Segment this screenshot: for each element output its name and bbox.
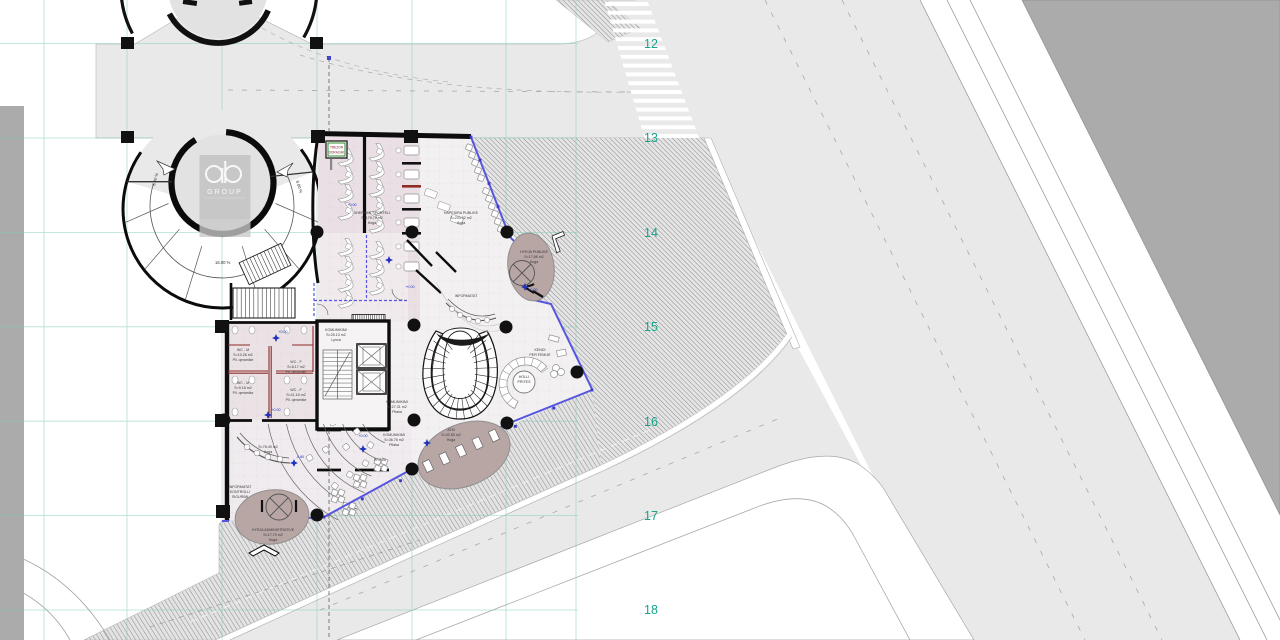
svg-text:PRITJA: PRITJA xyxy=(374,458,387,462)
svg-text:Pll. qeramike: Pll. qeramike xyxy=(233,391,254,395)
svg-text:S=32.83 m2: S=32.83 m2 xyxy=(441,433,460,437)
svg-text:+0.00: +0.00 xyxy=(358,434,367,438)
svg-text:S=17.70 m2: S=17.70 m2 xyxy=(263,533,282,537)
svg-text:Hoga: Hoga xyxy=(264,450,273,454)
svg-text:Pll. qeramike: Pll. qeramike xyxy=(286,398,307,402)
svg-text:SHERBIMI SPORTELI: SHERBIMI SPORTELI xyxy=(354,211,390,215)
svg-text:16: 16 xyxy=(644,415,658,429)
svg-text:Pll. qeramike: Pll. qeramike xyxy=(233,358,254,362)
svg-text:SIGURIMI: SIGURIMI xyxy=(232,495,248,499)
svg-text:Pllaka: Pllaka xyxy=(392,410,402,414)
svg-text:13: 13 xyxy=(644,131,658,145)
svg-text:18: 18 xyxy=(644,603,658,617)
svg-text:WC - F: WC - F xyxy=(290,388,302,392)
svg-text:GROUP: GROUP xyxy=(207,189,243,196)
svg-text:PER FEMIJE: PER FEMIJE xyxy=(529,353,551,357)
svg-text:Hoga: Hoga xyxy=(447,438,456,442)
svg-text:Hoga: Hoga xyxy=(457,221,466,225)
svg-text:S=11.16 m2: S=11.16 m2 xyxy=(286,393,305,397)
svg-text:+0.00: +0.00 xyxy=(528,288,537,292)
svg-text:KENDI: KENDI xyxy=(535,348,546,352)
svg-text:WC - F: WC - F xyxy=(290,360,302,364)
svg-text:S=36.76 m2: S=36.76 m2 xyxy=(384,438,403,442)
svg-text:S=27.31 m2: S=27.31 m2 xyxy=(387,405,406,409)
svg-text:17: 17 xyxy=(644,509,658,523)
svg-text:KONTROLLI: KONTROLLI xyxy=(230,490,250,494)
svg-text:-0.80: -0.80 xyxy=(296,455,304,459)
svg-text:Pllaka: Pllaka xyxy=(389,443,399,447)
svg-text:HYRJA PUBLIKE: HYRJA PUBLIKE xyxy=(520,250,548,254)
svg-text:PRITES: PRITES xyxy=(518,380,532,384)
svg-text:S=203.02 m2: S=203.02 m2 xyxy=(450,216,471,220)
svg-text:S=10.26 m2: S=10.26 m2 xyxy=(233,353,252,357)
svg-text:HAPESIRA PUBLIKE: HAPESIRA PUBLIKE xyxy=(444,211,479,215)
svg-text:ATM: ATM xyxy=(447,428,454,432)
svg-text:HOLLI: HOLLI xyxy=(519,375,529,379)
svg-text:HYRJA ADMINISTRATIVE: HYRJA ADMINISTRATIVE xyxy=(252,528,295,532)
svg-text:+0.00: +0.00 xyxy=(271,408,280,412)
svg-text:16.00 %: 16.00 % xyxy=(215,260,231,265)
svg-text:+0.00: +0.00 xyxy=(347,203,356,207)
svg-text:Lynca: Lynca xyxy=(331,338,340,342)
svg-text:15: 15 xyxy=(644,320,658,334)
svg-text:Hoga: Hoga xyxy=(269,538,278,542)
svg-text:Hoga: Hoga xyxy=(530,260,539,264)
svg-text:S=9.18 m2: S=9.18 m2 xyxy=(234,386,251,390)
svg-text:Pll. qeramike: Pll. qeramike xyxy=(286,370,307,374)
svg-text:14: 14 xyxy=(644,226,658,240)
svg-text:S=8.17 m2: S=8.17 m2 xyxy=(287,365,304,369)
svg-text:S=17.66 m2: S=17.66 m2 xyxy=(524,255,543,259)
svg-text:TREZOR: TREZOR xyxy=(330,146,344,150)
svg-text:WC - M: WC - M xyxy=(237,381,249,385)
svg-text:S=25.13 m2: S=25.13 m2 xyxy=(326,333,345,337)
svg-text:INFORMATAT: INFORMATAT xyxy=(455,294,478,298)
svg-text:KOMUNIKIMI: KOMUNIKIMI xyxy=(383,433,405,437)
svg-text:WC - M: WC - M xyxy=(237,348,249,352)
svg-text:S=78.49 m2: S=78.49 m2 xyxy=(258,445,277,449)
svg-text:DORACAK: DORACAK xyxy=(329,151,346,155)
svg-text:KOMUNIKIMI: KOMUNIKIMI xyxy=(325,328,347,332)
svg-text:Hoga: Hoga xyxy=(368,221,377,225)
svg-text:+0.00: +0.00 xyxy=(278,330,287,334)
svg-text:S=179.79 m2: S=179.79 m2 xyxy=(361,216,382,220)
svg-text:KOMUNIKIMI: KOMUNIKIMI xyxy=(386,400,408,404)
svg-text:+0.00: +0.00 xyxy=(405,285,414,289)
svg-text:12: 12 xyxy=(644,37,658,51)
svg-text:INFORMATAT: INFORMATAT xyxy=(229,485,252,489)
